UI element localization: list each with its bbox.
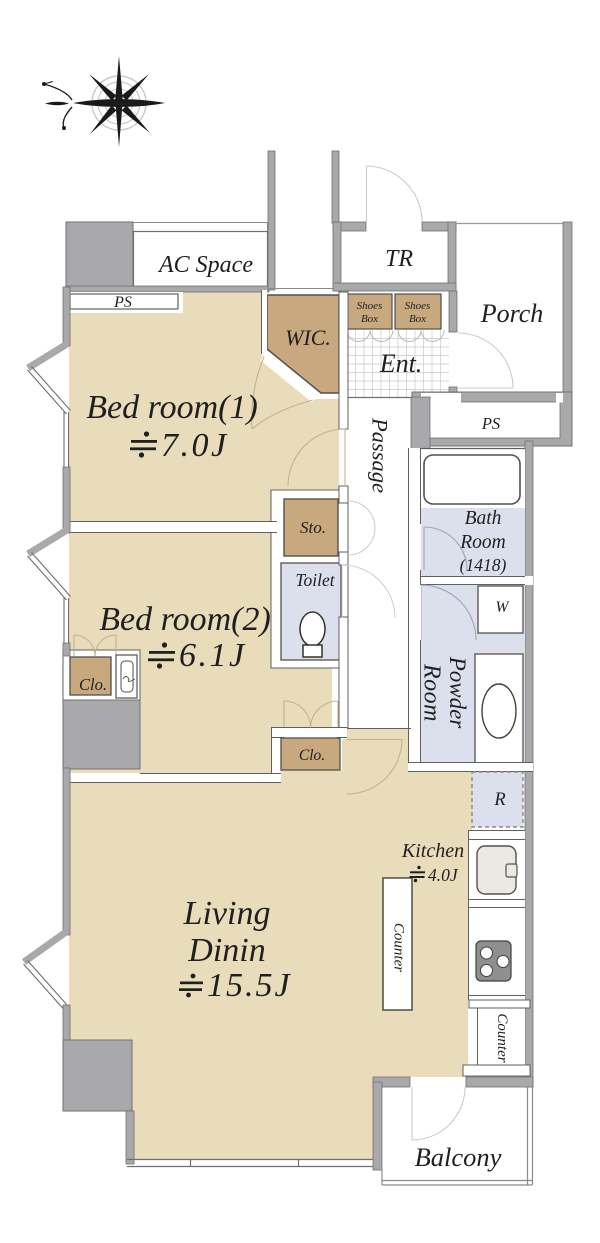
svg-text:AC Space: AC Space — [157, 252, 253, 278]
svg-text:Box: Box — [361, 313, 378, 325]
svg-text:Sto.: Sto. — [300, 518, 326, 537]
svg-text:4.0J: 4.0J — [428, 865, 459, 885]
svg-text:Counter: Counter — [494, 1013, 510, 1062]
svg-text:Passage: Passage — [368, 417, 393, 493]
svg-text:Dinin: Dinin — [187, 932, 265, 969]
svg-text:R: R — [493, 790, 505, 810]
svg-text:Shoes: Shoes — [357, 300, 383, 312]
svg-text:Bath: Bath — [465, 508, 502, 529]
svg-text:Counter: Counter — [391, 923, 407, 972]
svg-text:7.0J: 7.0J — [161, 427, 229, 464]
svg-text:Bed room(1): Bed room(1) — [86, 389, 258, 426]
svg-text:TR: TR — [385, 246, 413, 272]
svg-text:Balcony: Balcony — [415, 1142, 502, 1172]
svg-text:Ent.: Ent. — [379, 349, 423, 378]
svg-text:Toilet: Toilet — [295, 570, 335, 590]
svg-text:Box: Box — [409, 313, 426, 325]
svg-text:WIC.: WIC. — [285, 325, 331, 350]
svg-text:Clo.: Clo. — [79, 675, 107, 694]
svg-text:Kitchen: Kitchen — [401, 840, 464, 862]
svg-text:Living: Living — [183, 895, 271, 932]
svg-text:PS: PS — [113, 294, 132, 311]
svg-text:Bed room(2): Bed room(2) — [99, 601, 271, 638]
svg-text:15.5J: 15.5J — [207, 967, 292, 1004]
svg-text:Room: Room — [419, 663, 445, 722]
svg-text:Clo.: Clo. — [299, 747, 325, 764]
svg-text:W: W — [496, 599, 511, 616]
svg-text:Shoes: Shoes — [405, 300, 431, 312]
svg-text:Porch: Porch — [480, 299, 544, 328]
svg-text:PS: PS — [481, 414, 500, 433]
svg-text:Powder: Powder — [445, 656, 470, 730]
svg-text:Room: Room — [459, 532, 506, 553]
svg-text:6.1J: 6.1J — [179, 637, 247, 674]
